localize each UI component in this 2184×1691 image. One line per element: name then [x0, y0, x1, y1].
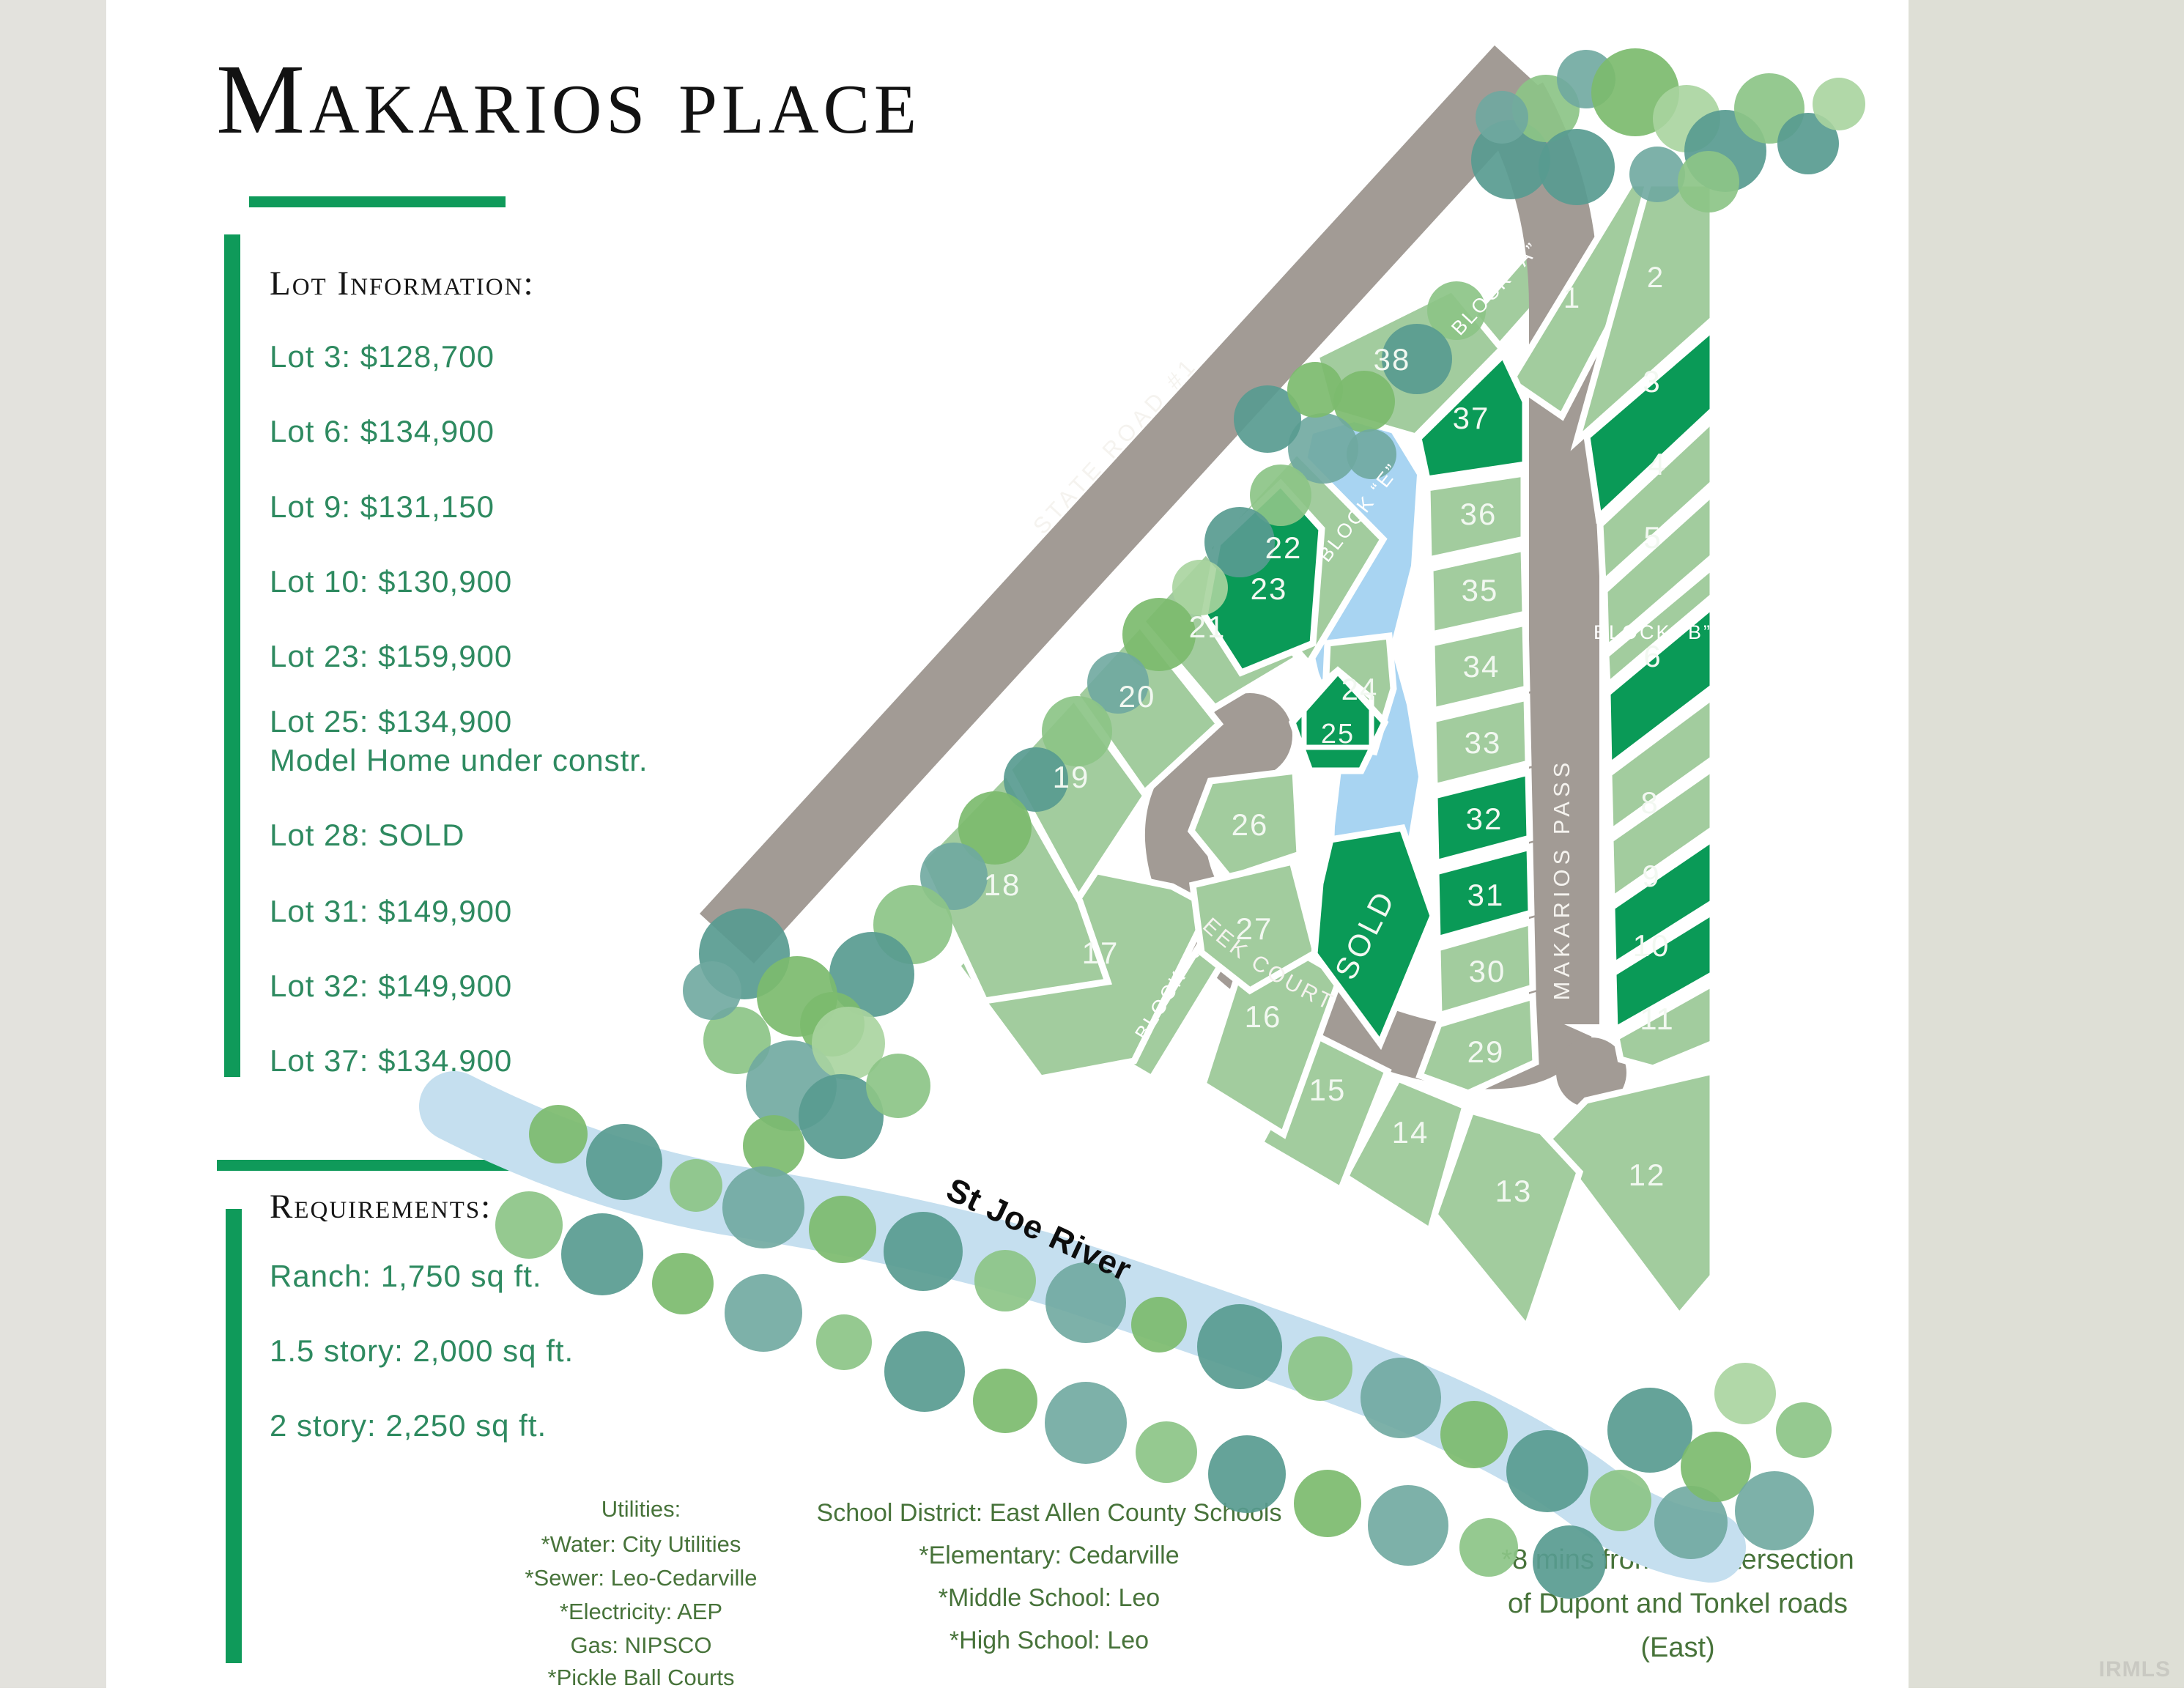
lot-number-label: 23 [1251, 571, 1288, 606]
lot-number-label: 31 [1467, 878, 1505, 912]
lot-number-label: 18 [984, 867, 1021, 902]
lot-number-label: 26 [1232, 807, 1269, 842]
lot-number-label: 9 [1642, 859, 1660, 893]
lot-number-label: 3 [1643, 364, 1661, 399]
lot-number-label: 37 [1453, 401, 1490, 435]
lot-number-label: 6 [1643, 639, 1662, 673]
lot-number-label: 16 [1245, 999, 1282, 1034]
lot-number-label: 19 [1053, 760, 1090, 794]
lot-number-label: 32 [1466, 802, 1503, 836]
lot-number-label: 12 [1629, 1158, 1666, 1192]
lot-number-label: 36 [1460, 497, 1498, 531]
lot-number-label: 4 [1648, 447, 1666, 481]
lot-number-label: 22 [1265, 530, 1303, 565]
lot-number-label: 14 [1392, 1115, 1429, 1150]
lot-number-label: 21 [1189, 610, 1226, 644]
lot-number-label: 33 [1465, 725, 1502, 760]
lot-number-label: 2 [1647, 262, 1665, 294]
site-plan-map: 1 2 3 4 5 6 8 9 10 11 12 13 14 15 16 17 … [0, 0, 2184, 1688]
lot-number-label: 38 [1374, 342, 1411, 377]
lot-number-label: 30 [1469, 954, 1506, 988]
lot-number-label: 25 [1321, 719, 1355, 750]
lot-number-label: 15 [1309, 1073, 1347, 1107]
lot-number-label: 13 [1495, 1174, 1533, 1208]
lot-number-label: 5 [1643, 520, 1662, 555]
lot-number-label: 11 [1640, 1002, 1675, 1036]
lot-number-label: 1 [1563, 282, 1581, 314]
lot-number-label: 29 [1467, 1035, 1505, 1069]
lot-number-label: 24 [1341, 672, 1379, 706]
makarios-pass-label: Makarios Pass [1549, 758, 1574, 1001]
block-b-label: Block “B” [1593, 621, 1712, 643]
lot-number-label: 8 [1640, 785, 1659, 820]
lot-number-label: 10 [1633, 928, 1670, 963]
lot-number-label: 17 [1082, 936, 1119, 970]
lot-number-label: 35 [1462, 573, 1499, 607]
lot-number-label: 34 [1463, 649, 1500, 684]
lot-number-label: 20 [1119, 679, 1156, 714]
